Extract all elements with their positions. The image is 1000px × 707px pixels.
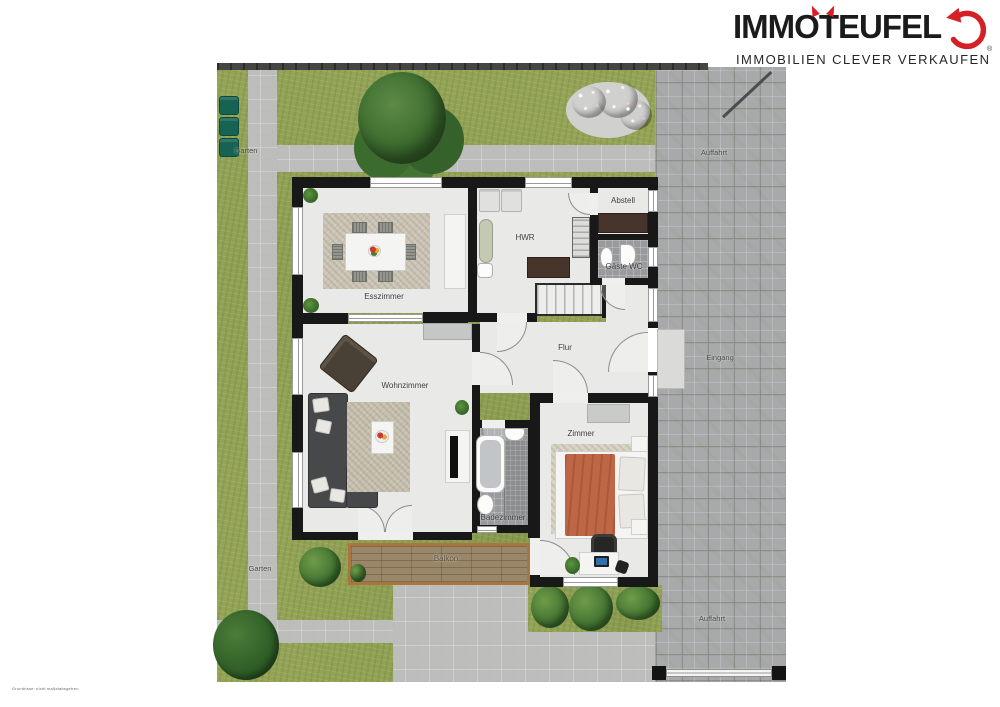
wall: [588, 393, 648, 403]
wall: [300, 313, 348, 324]
label-garten: Garten: [220, 146, 272, 155]
label-eingang: Eingang: [695, 353, 745, 362]
bath-sink: [477, 494, 494, 515]
ironing-board: [479, 219, 493, 263]
wall: [527, 313, 537, 322]
dining-chair: [378, 271, 393, 282]
gate-post-right: [772, 666, 786, 680]
wall: [472, 324, 480, 352]
wall: [590, 215, 598, 280]
window: [477, 526, 497, 533]
floor-plan-page: Garten Garten Auffahrt Auffahrt Eingang …: [0, 0, 1000, 707]
wall: [472, 420, 482, 428]
bush-south: [531, 586, 569, 628]
wardrobe: [598, 213, 648, 233]
tree-large: [358, 72, 446, 164]
logo-wordmark: IMMOTEUFEL: [733, 10, 941, 44]
potted-plant: [455, 400, 469, 415]
tv: [450, 436, 458, 478]
door-opening: [482, 420, 505, 428]
entrance-step: [657, 329, 685, 389]
wall: [590, 278, 602, 285]
balcony-plant: [350, 564, 366, 582]
potted-plant: [303, 188, 318, 203]
window: [648, 247, 658, 267]
window: [648, 288, 658, 322]
shower: [504, 440, 528, 520]
flower-bush: [620, 100, 652, 130]
closet: [587, 404, 630, 423]
door-opening: [590, 193, 598, 215]
bed-blanket: [565, 454, 615, 536]
sliding-opening: [348, 314, 423, 322]
dining-chair: [352, 271, 367, 282]
wall: [423, 312, 468, 323]
wall: [468, 188, 477, 313]
plan-disclaimer: Grundrisse: nicht maßstabsgetreu: [12, 686, 79, 691]
bathtub-basin: [480, 440, 501, 488]
potted-plant: [565, 557, 580, 574]
washing-machine: [479, 189, 500, 212]
wall: [292, 177, 370, 188]
wall: [648, 397, 658, 587]
wall: [530, 575, 540, 579]
immoteufel-logo: IMMOTEUFEL ® IMMOBILIEN CLEVER VERKAUFEN: [733, 10, 995, 72]
label-flur: Flur: [545, 343, 585, 352]
label-balkon: Balkon: [418, 554, 474, 563]
door-opening: [358, 532, 413, 540]
label-abstell: Abstell: [602, 196, 644, 205]
hwr-sideboard: [527, 257, 570, 278]
bush-south: [569, 585, 613, 631]
label-esszimmer: Esszimmer: [354, 292, 414, 301]
devil-tail-icon: [945, 8, 991, 54]
balcony-deck: [348, 543, 530, 585]
potted-plant: [303, 298, 319, 313]
door-opening: [497, 313, 527, 322]
sideboard-gray: [423, 323, 472, 340]
wall: [413, 532, 472, 540]
wall: [468, 313, 497, 322]
label-auffahrt: Auffahrt: [684, 614, 740, 623]
label-badezimmer: Badezimmer: [475, 513, 531, 522]
window: [370, 177, 442, 188]
wall: [292, 275, 303, 338]
gate-post-left: [652, 666, 666, 680]
wall: [292, 177, 303, 207]
basement-stairs: [572, 217, 590, 258]
dining-chair: [405, 244, 416, 260]
label-gaeste-wc: Gäste WC: [600, 262, 648, 271]
label-zimmer: Zimmer: [558, 429, 604, 438]
sideboard: [444, 214, 466, 289]
wall: [442, 177, 525, 188]
nightstand: [631, 436, 648, 452]
window: [292, 338, 303, 395]
nightstand: [631, 519, 648, 535]
label-hwr: HWR: [505, 233, 545, 242]
fruit-bowl: [368, 245, 381, 257]
window: [292, 207, 303, 275]
window: [292, 452, 303, 508]
wall: [292, 395, 303, 452]
label-wohnzimmer: Wohnzimmer: [370, 381, 440, 390]
gate-bottom: [666, 669, 772, 677]
logo-tagline: IMMOBILIEN CLEVER VERKAUFEN: [736, 52, 990, 67]
waste-bin: [219, 117, 239, 136]
waste-bin: [219, 96, 239, 115]
sofa-pillow: [329, 488, 346, 503]
door-opening: [472, 352, 480, 385]
fence-top: [217, 63, 708, 70]
label-garten: Garten: [238, 564, 282, 573]
fruit-bowl: [375, 430, 389, 443]
window: [563, 577, 618, 587]
wall: [530, 393, 553, 403]
path-top: [277, 145, 655, 172]
bush-south: [616, 586, 660, 620]
wall: [292, 532, 358, 540]
door-opening: [553, 393, 588, 403]
dryer: [501, 189, 522, 212]
staircase: [535, 283, 606, 316]
wall: [625, 278, 658, 285]
bush-bottom-left: [213, 610, 279, 680]
laptop: [594, 556, 609, 567]
wall: [572, 177, 658, 188]
wall: [590, 234, 648, 240]
sofa-pillow: [312, 397, 330, 413]
wall: [648, 177, 658, 190]
dining-chair: [352, 222, 367, 233]
wall: [648, 212, 658, 247]
dining-chair: [332, 244, 343, 260]
window: [525, 177, 572, 188]
dining-chair: [378, 222, 393, 233]
label-auffahrt: Auffahrt: [686, 148, 742, 157]
sofa-pillow: [315, 419, 332, 435]
window: [648, 190, 658, 212]
utility-sink: [477, 263, 493, 278]
bed-pillow: [618, 456, 646, 491]
door-opening: [530, 538, 540, 575]
bush-garden: [299, 547, 341, 587]
wall: [590, 177, 598, 193]
door-opening: [602, 278, 625, 285]
